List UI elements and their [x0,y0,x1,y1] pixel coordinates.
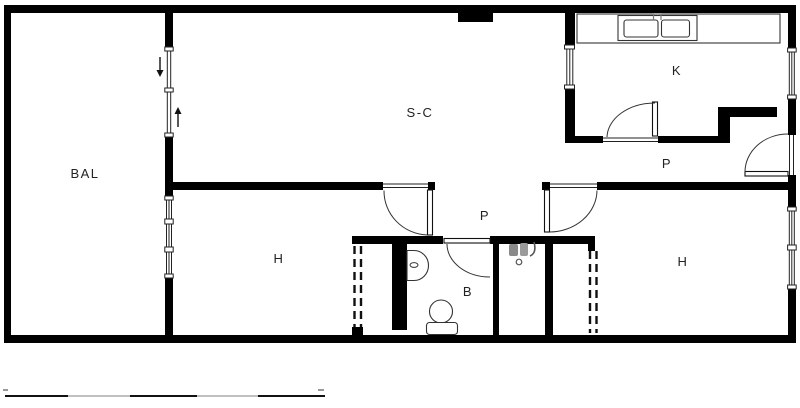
closet-left-stub [352,327,363,335]
kitchen-west-seg1 [565,13,575,47]
kitchen-door [603,102,658,142]
slide-arrow-down-icon [157,57,164,77]
bath-washbasin [407,251,429,281]
room-label-bathroom: B [463,284,473,299]
room-label-hall-lower: P [480,208,490,223]
balcony-divider-seg1 [165,13,173,48]
bathroom-door [444,239,490,278]
room-label-hall-upper: P [662,156,672,171]
scale-mark-left [3,389,8,391]
entry-door [745,134,794,176]
kitchen-west-window [565,45,575,89]
wall-bath-wc [493,244,499,335]
kitchen-west-seg2 [565,88,575,143]
bath-top-seg2 [490,236,595,244]
doors [157,47,794,277]
wardrobe-left [355,246,362,327]
toilet [427,300,458,335]
room-label-balcony: BAL [70,166,99,181]
chimney-block [458,13,493,22]
closet-right-stub [588,244,595,251]
room-label-bedroom-right: H [678,254,689,269]
bedroom-left-door [383,184,433,235]
scale-bar [3,389,325,397]
slide-arrow-up-icon [175,107,182,127]
wardrobe-right [590,251,597,333]
wall-left [4,5,11,343]
kitchen-counter [577,14,780,43]
wall-right-seg2 [788,98,796,135]
bedroom-right-window [788,207,797,289]
wall-right-seg1 [788,5,796,50]
wall-top [4,5,796,13]
interior-walls [165,13,788,335]
wc-fixture [509,242,535,265]
wall-wc-bedroomright [545,236,553,335]
room-label-kitchen: K [672,63,682,78]
room-label-bedroom-left: H [274,251,285,266]
floorplan-canvas: BAL S-C K P P H H B [0,0,800,408]
balcony-divider-seg3 [165,277,173,335]
balcony-sliding-door [157,47,182,137]
kitchen-east-window [788,48,797,99]
kitchen-south-seg1 [565,136,603,143]
room-labels: BAL S-C K P P H H B [70,63,688,299]
kitchen-step-vertical [718,107,730,143]
wall-bedroom-bath [392,236,407,330]
room-label-living-room: S-C [407,105,434,120]
wall-right-seg3 [788,175,796,209]
wall-right-seg4 [788,288,796,343]
wall-bottom [4,335,796,343]
bedroom-right-door [545,184,598,232]
wall-hall-bedroomright-jamb [542,182,550,190]
wall-livingroom-jamb [428,182,435,190]
balcony-window [165,196,173,278]
windows [165,45,796,289]
kitchen-south-seg2 [658,136,723,143]
wall-hall-bedroomright [597,182,788,190]
scale-mark-right [318,389,324,391]
wall-livingroom-bedroom [165,182,383,190]
